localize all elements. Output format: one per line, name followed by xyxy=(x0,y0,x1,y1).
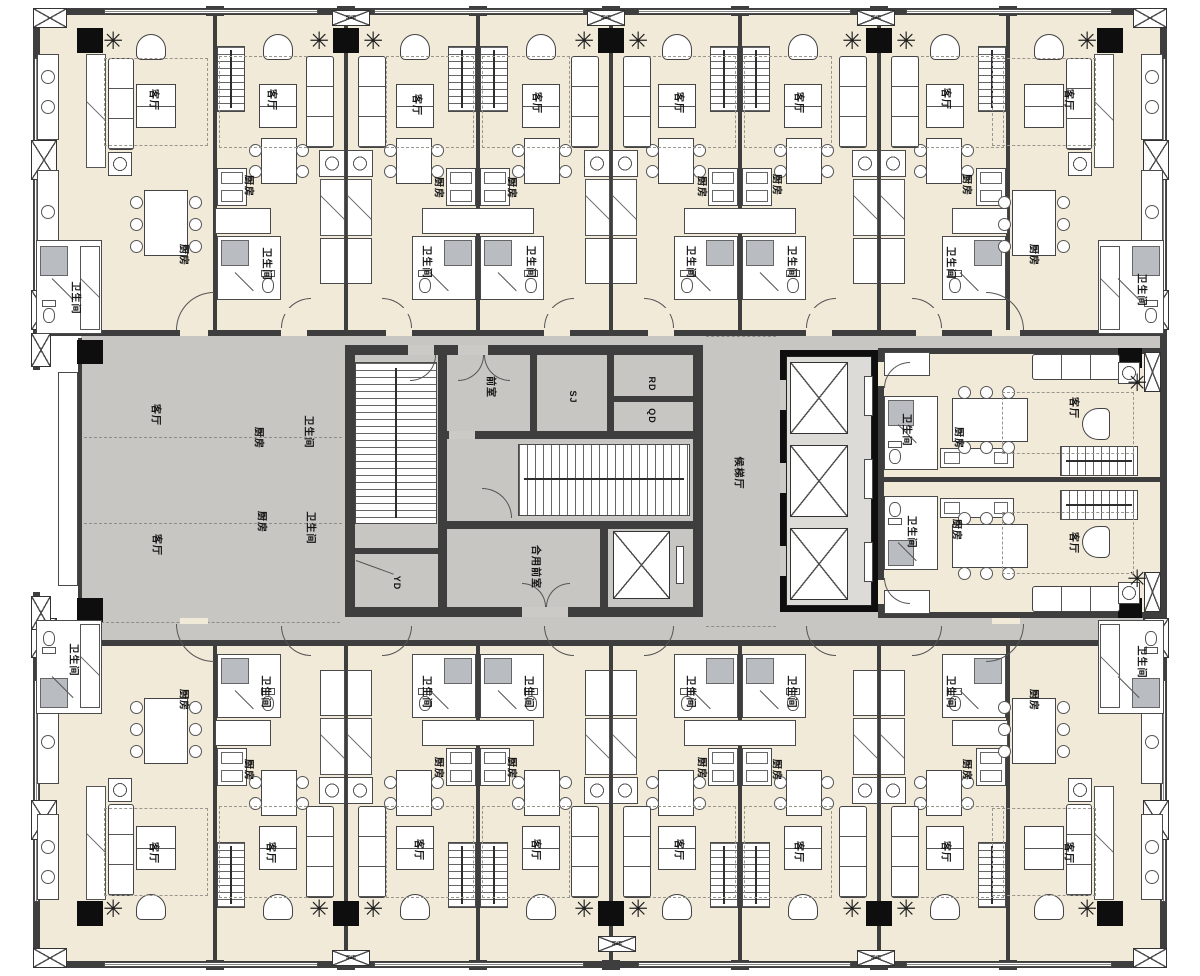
bath-closet xyxy=(1100,624,1120,708)
toilet xyxy=(681,278,693,293)
fan-chair xyxy=(1034,34,1064,60)
room-label-bath: 卫生间 xyxy=(685,246,700,279)
duct-closet xyxy=(585,718,610,775)
sink xyxy=(450,172,472,184)
room-label-kitchen: 厨房 xyxy=(961,174,976,196)
room-label-bath: 卫生间 xyxy=(685,676,700,709)
elevator-car xyxy=(613,531,670,599)
toilet xyxy=(525,278,537,293)
dashed-line xyxy=(84,523,342,524)
plant xyxy=(1074,898,1100,924)
duct-closet xyxy=(585,179,610,236)
room-label-living: 客厅 xyxy=(673,92,688,114)
wall xyxy=(78,338,82,622)
sink xyxy=(944,502,960,514)
sink xyxy=(712,172,734,184)
wardrobe xyxy=(86,786,106,900)
bath-closet xyxy=(1100,246,1120,330)
zone-dash xyxy=(992,58,1096,146)
chair xyxy=(980,512,993,525)
door-gap xyxy=(544,330,570,336)
bath-closet xyxy=(80,624,100,708)
plant xyxy=(625,898,651,924)
door-gap xyxy=(281,308,307,314)
kitchen-counter-band xyxy=(422,720,534,746)
core-wall xyxy=(438,352,447,610)
core-wall xyxy=(693,345,703,617)
core-wall xyxy=(345,345,355,617)
chair xyxy=(1057,196,1070,209)
stove xyxy=(980,770,1002,782)
chair xyxy=(559,165,572,178)
cabinet xyxy=(880,670,905,716)
plant xyxy=(893,30,919,56)
stair-rail xyxy=(1066,504,1132,506)
door-gap xyxy=(386,330,412,336)
counterweight xyxy=(864,459,873,499)
room-label-kitchen: 厨房 xyxy=(1028,244,1043,266)
room-label-rd: RD xyxy=(647,377,657,392)
elevator-car xyxy=(790,445,848,517)
sink xyxy=(1145,100,1159,114)
sofa xyxy=(358,806,386,898)
washing-machine xyxy=(612,150,638,177)
sofa xyxy=(891,806,919,898)
room-label-kitchen: 厨房 xyxy=(506,757,521,779)
shower xyxy=(484,240,512,266)
duct-closet xyxy=(320,179,345,236)
column xyxy=(1097,901,1123,926)
shower xyxy=(746,240,774,266)
chair xyxy=(646,776,659,789)
toilet-tank xyxy=(42,300,56,307)
room-label-living: 客厅 xyxy=(530,839,545,861)
column-xbox xyxy=(31,333,51,367)
door-gap xyxy=(878,580,884,604)
core-wall xyxy=(610,396,697,402)
chair xyxy=(958,386,971,399)
chair xyxy=(189,745,202,758)
room-label-shared_front: 合用前室 xyxy=(530,545,545,589)
cabinet xyxy=(585,670,610,716)
shower xyxy=(221,658,249,684)
svc-label: SVC xyxy=(871,15,881,21)
elevator-car xyxy=(790,528,848,600)
chair xyxy=(998,218,1011,231)
duct-closet xyxy=(612,179,637,236)
chair xyxy=(189,196,202,209)
chair xyxy=(980,567,993,580)
toilet xyxy=(889,449,901,464)
zone-dash xyxy=(648,806,736,898)
zone-dash xyxy=(219,806,307,898)
plant xyxy=(571,30,597,56)
room-label-living: 客厅 xyxy=(1063,89,1078,111)
sink xyxy=(41,70,55,84)
room-label-living: 客厅 xyxy=(413,839,428,861)
room-label-bath: 卫生间 xyxy=(305,512,320,545)
window xyxy=(638,962,851,967)
room-label-living: 客厅 xyxy=(148,842,163,864)
sink xyxy=(1145,735,1159,749)
toilet xyxy=(1145,631,1157,646)
shower xyxy=(40,678,68,708)
zone-dash xyxy=(482,56,570,148)
room-label-kitchen: 厨房 xyxy=(953,427,968,449)
duct-closet xyxy=(612,718,637,775)
plant xyxy=(839,30,865,56)
plant xyxy=(893,898,919,924)
cabinet xyxy=(853,670,878,716)
kitchen-counter xyxy=(37,814,59,900)
column xyxy=(77,340,103,364)
door-gap xyxy=(992,618,1020,624)
sink xyxy=(484,172,506,184)
sofa xyxy=(306,806,334,898)
fan-chair xyxy=(136,894,166,920)
sofa xyxy=(358,56,386,148)
stove xyxy=(712,190,734,202)
plant xyxy=(100,898,126,924)
column xyxy=(77,598,103,622)
room-label-bath: 卫生间 xyxy=(901,414,916,447)
sofa xyxy=(1032,354,1120,380)
chair xyxy=(384,776,397,789)
washing-machine xyxy=(347,150,373,177)
kitchen-counter xyxy=(1141,814,1163,900)
chair xyxy=(1057,240,1070,253)
toilet xyxy=(889,502,901,517)
column xyxy=(333,901,359,926)
door-gap xyxy=(544,308,570,314)
sofa xyxy=(839,806,867,898)
wardrobe xyxy=(1094,786,1114,900)
room-label-sj: SJ xyxy=(568,390,578,403)
chair xyxy=(998,723,1011,736)
fan-chair xyxy=(136,34,166,60)
door-gap xyxy=(806,330,832,336)
room-label-living: 客厅 xyxy=(266,89,281,111)
washing-machine xyxy=(1068,778,1092,802)
shower xyxy=(706,658,734,684)
kitchen-counter-band xyxy=(684,208,796,234)
chair xyxy=(998,745,1011,758)
door-gap xyxy=(916,308,942,314)
room-label-kitchen: 厨房 xyxy=(771,759,786,781)
room-label-bath: 卫生间 xyxy=(421,676,436,709)
stove xyxy=(484,770,506,782)
chair xyxy=(998,701,1011,714)
window xyxy=(104,962,318,967)
svc-label: SVC xyxy=(612,941,622,947)
room-label-living: 客厅 xyxy=(793,92,808,114)
elevator-door xyxy=(780,380,786,410)
door-gap xyxy=(916,330,942,336)
cabinet xyxy=(320,238,345,284)
room-label-bath: 卫生间 xyxy=(906,516,921,549)
room-label-bath: 卫生间 xyxy=(1136,646,1151,679)
elevator-door xyxy=(780,546,786,576)
chair xyxy=(1057,723,1070,736)
stair-rail xyxy=(524,478,684,480)
window xyxy=(374,962,584,967)
sink xyxy=(484,752,506,764)
chair xyxy=(130,745,143,758)
chair xyxy=(998,196,1011,209)
kitchen-counter-band xyxy=(684,720,796,746)
room-label-bath: 卫生间 xyxy=(261,248,276,281)
plant xyxy=(360,30,386,56)
sink xyxy=(41,205,55,219)
washing-machine xyxy=(880,150,906,177)
room-label-bath: 卫生间 xyxy=(421,246,436,279)
kitchen-counter-band xyxy=(422,208,534,234)
washing-machine xyxy=(347,777,373,804)
counterweight xyxy=(864,376,873,416)
room-label-living: 客厅 xyxy=(1068,532,1083,554)
washing-machine xyxy=(852,150,878,177)
room-label-elev_lobby: 候梯厅 xyxy=(733,457,748,490)
column-xbox xyxy=(33,8,67,28)
ghost-cabinet xyxy=(58,372,78,586)
plant xyxy=(571,898,597,924)
door-gap xyxy=(648,308,674,314)
plant xyxy=(360,898,386,924)
sink xyxy=(1145,840,1159,854)
wall xyxy=(878,477,1160,482)
room-label-living: 客厅 xyxy=(150,404,165,426)
door-gap xyxy=(992,330,1020,336)
room-label-living: 客厅 xyxy=(265,842,280,864)
core-wall xyxy=(352,548,442,554)
chair xyxy=(130,701,143,714)
room-label-front_room: 前室 xyxy=(485,376,500,398)
toilet-tank xyxy=(888,518,902,525)
door-gap xyxy=(449,431,475,439)
shower xyxy=(221,240,249,266)
door-gap xyxy=(281,330,307,336)
column xyxy=(866,28,892,53)
room-label-kitchen: 厨房 xyxy=(506,177,521,199)
stove xyxy=(450,190,472,202)
column xyxy=(1097,28,1123,53)
plant xyxy=(306,898,332,924)
chair xyxy=(130,240,143,253)
chair xyxy=(189,218,202,231)
cabinet xyxy=(585,238,610,284)
room-label-kitchen: 厨房 xyxy=(178,689,193,711)
wardrobe xyxy=(86,54,106,168)
chair xyxy=(559,776,572,789)
sink xyxy=(41,870,55,884)
plant xyxy=(100,30,126,56)
stove xyxy=(221,770,243,782)
elevator-door xyxy=(780,463,786,493)
chair xyxy=(914,776,927,789)
counterweight xyxy=(676,546,684,584)
plant xyxy=(306,30,332,56)
shower xyxy=(706,240,734,266)
chair xyxy=(821,165,834,178)
column-xbox xyxy=(1133,8,1167,28)
room-label-living: 客厅 xyxy=(1068,397,1083,419)
zone-dash xyxy=(386,56,474,148)
room-label-bath: 卫生间 xyxy=(303,416,318,449)
door-gap xyxy=(180,330,208,336)
duct-closet xyxy=(880,718,905,775)
stove xyxy=(746,190,768,202)
room-label-bath: 卫生间 xyxy=(786,676,801,709)
duct-closet xyxy=(320,718,345,775)
party-wall xyxy=(1006,646,1010,961)
cabinet xyxy=(347,670,372,716)
room-label-yd: YD xyxy=(392,576,402,591)
cabinet xyxy=(612,670,637,716)
washing-machine xyxy=(880,777,906,804)
svc-label: SVC xyxy=(601,15,611,21)
room-label-kitchen: 厨房 xyxy=(1028,689,1043,711)
chair xyxy=(1057,218,1070,231)
room-label-bath: 卫生间 xyxy=(523,676,538,709)
stove xyxy=(712,770,734,782)
washing-machine xyxy=(319,777,345,804)
door-gap xyxy=(522,607,568,617)
room-label-kitchen: 厨房 xyxy=(696,757,711,779)
duct-closet xyxy=(347,718,372,775)
zone-dash xyxy=(648,56,736,148)
plant xyxy=(1074,30,1100,56)
door-gap xyxy=(408,345,434,355)
kitchen-counter-band xyxy=(215,720,271,746)
elevator-car xyxy=(790,362,848,434)
core-wall xyxy=(445,431,703,439)
duct-closet xyxy=(853,179,878,236)
room-label-bath: 卫生间 xyxy=(260,676,275,709)
chair xyxy=(296,165,309,178)
chair xyxy=(914,165,927,178)
room-label-kitchen: 厨房 xyxy=(696,176,711,198)
room-label-living: 客厅 xyxy=(940,88,955,110)
sink xyxy=(450,752,472,764)
shower xyxy=(1132,246,1160,276)
chair xyxy=(1057,745,1070,758)
room-label-bath: 卫生间 xyxy=(70,282,85,315)
sink xyxy=(944,452,960,464)
column xyxy=(866,901,892,926)
room-label-living: 客厅 xyxy=(1063,842,1078,864)
chair xyxy=(130,196,143,209)
toilet xyxy=(43,308,55,323)
chair xyxy=(384,165,397,178)
duct-closet xyxy=(853,718,878,775)
shower xyxy=(444,240,472,266)
room-label-kitchen: 厨房 xyxy=(256,511,271,533)
room-label-living: 客厅 xyxy=(793,841,808,863)
washing-machine xyxy=(584,150,610,177)
dashed-line xyxy=(706,626,776,627)
room-label-bath: 卫生间 xyxy=(786,246,801,279)
cabinet xyxy=(880,238,905,284)
column xyxy=(333,28,359,53)
duct-closet xyxy=(880,179,905,236)
room-label-living: 客厅 xyxy=(411,94,426,116)
toilet-tank xyxy=(42,647,56,654)
svc-label: SVC xyxy=(346,955,356,961)
door-gap xyxy=(180,618,208,624)
sink xyxy=(41,840,55,854)
zone-dash xyxy=(386,806,474,898)
counterweight xyxy=(864,542,873,582)
sink xyxy=(221,172,243,184)
room-label-kitchen: 厨房 xyxy=(253,427,268,449)
toilet xyxy=(949,278,961,293)
stove xyxy=(746,770,768,782)
sink xyxy=(41,100,55,114)
zone-dash xyxy=(744,56,832,148)
kitchen-counter xyxy=(37,54,59,140)
plant xyxy=(839,898,865,924)
washing-machine xyxy=(319,150,345,177)
dashed-line xyxy=(706,336,776,337)
shower xyxy=(444,658,472,684)
chair xyxy=(980,441,993,454)
zone-dash xyxy=(992,808,1096,896)
washing-machine xyxy=(108,152,132,176)
room-label-kitchen: 厨房 xyxy=(433,177,448,199)
room-label-kitchen: 厨房 xyxy=(433,757,448,779)
sink xyxy=(980,172,1002,184)
sink xyxy=(712,752,734,764)
room-label-kitchen: 厨房 xyxy=(243,175,258,197)
core-wall xyxy=(600,529,608,607)
chair xyxy=(980,386,993,399)
room-label-bath: 卫生间 xyxy=(945,247,960,280)
core-wall xyxy=(530,352,537,438)
sink xyxy=(41,735,55,749)
chair xyxy=(646,165,659,178)
sink xyxy=(1145,205,1159,219)
chair xyxy=(130,723,143,736)
chair xyxy=(958,567,971,580)
room-label-kitchen: 厨房 xyxy=(951,519,966,541)
sofa xyxy=(623,806,651,898)
room-label-kitchen: 厨房 xyxy=(243,759,258,781)
sink xyxy=(746,172,768,184)
zone-dash xyxy=(219,56,307,148)
chair xyxy=(130,218,143,231)
sofa xyxy=(623,56,651,148)
room-label-kitchen: 厨房 xyxy=(961,759,976,781)
stove xyxy=(484,190,506,202)
core-stairs xyxy=(518,444,690,516)
room-label-bath: 卫生间 xyxy=(1136,274,1151,307)
door-gap xyxy=(648,330,674,336)
toilet xyxy=(43,631,55,646)
floor-plan: 客厅客厅客厅客厅客厅客厅客厅客厅厨房厨房厨房厨房厨房厨房厨房厨房卫生间卫生间卫生… xyxy=(0,0,1200,976)
toilet xyxy=(1145,308,1157,323)
wall-stub xyxy=(602,960,620,970)
core-wall xyxy=(607,352,614,438)
shower xyxy=(746,658,774,684)
room-label-bath: 卫生间 xyxy=(68,644,83,677)
cabinet xyxy=(612,238,637,284)
washing-machine xyxy=(584,777,610,804)
stove xyxy=(450,770,472,782)
room-label-living: 客厅 xyxy=(531,92,546,114)
fan-chair xyxy=(1034,894,1064,920)
chair xyxy=(189,723,202,736)
room-label-living: 客厅 xyxy=(940,841,955,863)
